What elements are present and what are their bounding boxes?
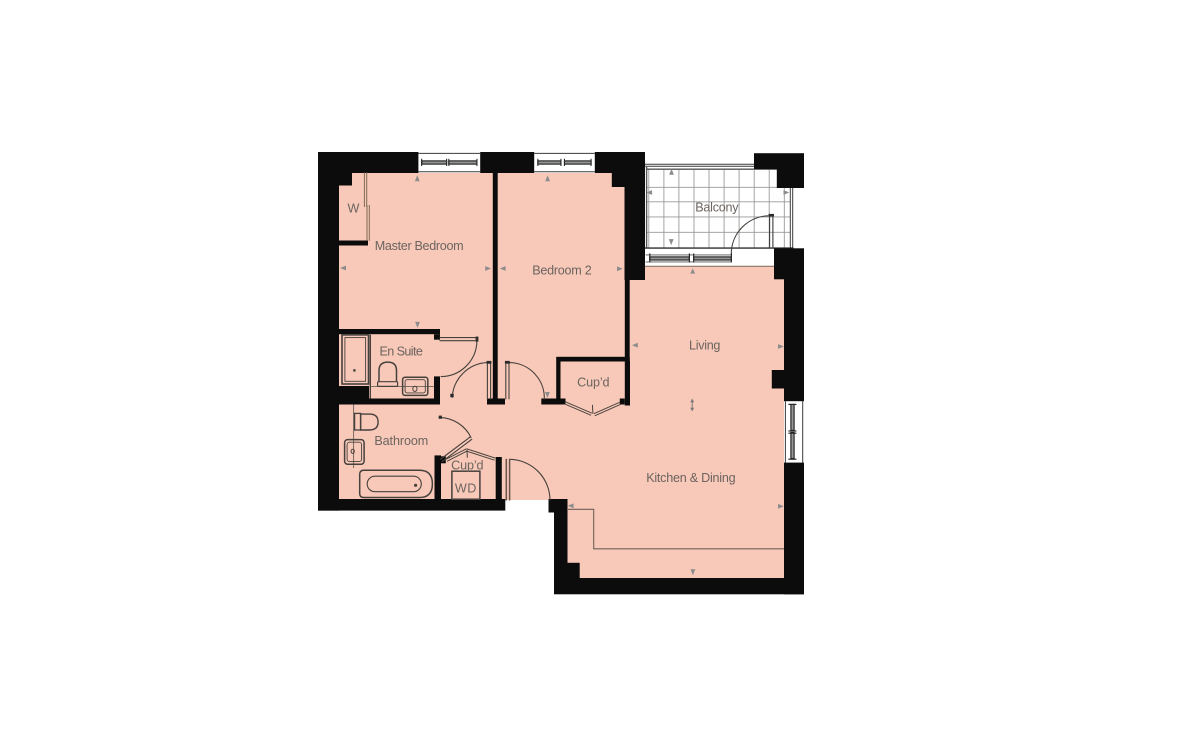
svg-text:En Suite: En Suite <box>380 344 424 358</box>
svg-text:WD: WD <box>455 481 477 495</box>
svg-text:Balcony: Balcony <box>695 201 739 215</box>
svg-text:W: W <box>348 202 361 216</box>
svg-text:Living: Living <box>689 339 721 353</box>
svg-text:Kitchen & Dining: Kitchen & Dining <box>646 471 736 485</box>
svg-text:Bathroom: Bathroom <box>374 434 429 448</box>
svg-text:Master Bedroom: Master Bedroom <box>375 239 465 253</box>
svg-text:Cup’d: Cup’d <box>451 458 484 472</box>
svg-text:Bedroom 2: Bedroom 2 <box>532 263 592 277</box>
svg-text:Cup’d: Cup’d <box>577 375 610 389</box>
